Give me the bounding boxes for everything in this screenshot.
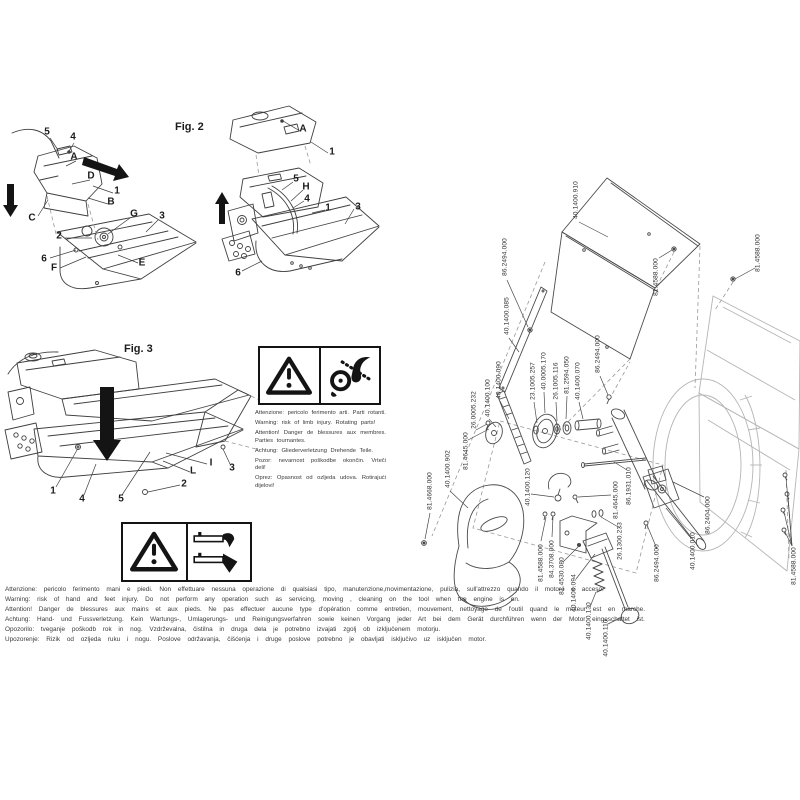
warning-line-it: Attenzione: pericolo ferimento arti. Par… [255,410,386,418]
part-number-label: 40.1400.090 [496,361,503,399]
bottom-warning-de: Achtung: Hand- und Fussverletzung. Kein … [5,616,794,624]
part-number-label: 40.1400.010 [690,532,697,570]
part-number-label: 86.2494.000 [502,238,509,276]
exploded-parts [454,178,708,626]
fig2-callout: E [139,258,146,269]
part-number-label: 40.0005.170 [541,352,548,390]
fig2-callout: F [51,263,57,274]
fig2-title: Fig. 2 [175,121,204,133]
part-number-label: 23.1005.257 [530,362,537,400]
fig2-callout: 3 [355,202,361,213]
fig2-callout: 4 [70,132,76,143]
fig2-callout: 2 [56,231,62,242]
part-number-label: 81.4645.000 [463,432,470,470]
fig3-callout: 4 [79,494,85,505]
hand-foot-injury-icon [188,524,251,580]
fig2-callout: G [130,209,138,220]
manual-page: Fig. 2 Fig. 3 5 4 A D 1 B C G 3 2 6 F E … [0,0,800,800]
rotating-warning-text: Attenzione: pericolo ferimento arti. Par… [255,410,386,493]
fig2-callout: B [107,197,114,208]
fig3-callout: I [210,458,213,469]
fig3-title: Fig. 3 [124,343,153,355]
part-number-label: 81.4668.000 [427,472,434,510]
warning-triangle-icon [260,348,321,403]
rotating-parts-entanglement-icon [321,348,380,403]
fig3-callout: 3 [229,463,235,474]
fig2-callout: A [70,152,77,163]
fig2-callout: 5 [293,174,299,185]
bottom-warning-sl: Opozorilo: tveganje poškodb rok in nog. … [5,626,794,634]
fig2-callout: 6 [41,254,47,265]
part-number-label: 86.1931.010 [626,467,633,505]
fig2-right-leaders [242,120,354,271]
warning-line-sl: Pozor: nevarnost poškodbe okončin. Vrteč… [255,458,386,473]
part-number-label: 81.4645.000 [613,481,620,519]
part-number-label: 81.4588.000 [653,258,660,296]
part-number-label: 84.3708.000 [549,540,556,578]
direction-arrows [3,157,229,461]
fig2-callout: H [302,182,309,193]
bottom-warning-en: Warning: risk of hand and feet injury. D… [5,596,794,604]
part-number-label: 86.2404.000 [705,496,712,534]
exploded-leaders [425,222,792,624]
fig2-callout: 6 [235,268,241,279]
fig2-callout: C [28,213,35,224]
fig2-callout: 1 [325,203,331,214]
part-number-label: 26.1300.233 [617,522,624,560]
warning-pictogram-box-hand-feet [121,522,252,582]
fig2-callout: 1 [329,147,335,158]
fig2-callout: 5 [44,127,50,138]
bottom-warning-fr: Attention! Danger de blessures aux mains… [5,606,794,614]
exploded-hopper-drum [653,296,800,571]
part-number-label: 86.2494.000 [595,335,602,373]
fig3-drawing [5,350,251,495]
fig3-leaders [56,449,230,495]
part-number-label: 40.1400.100 [485,379,492,417]
part-number-label: 26.0005.232 [471,391,478,429]
technical-line-art [0,0,800,800]
part-number-label: 40.1400.085 [504,297,511,335]
bottom-warning-it: Attenzione: pericolo ferimento mani e pi… [5,586,794,594]
part-number-label: 81.4588.000 [791,547,798,585]
part-number-label: 40.1400.902 [445,450,452,488]
fig2-callout: 1 [114,186,120,197]
fig2-left-drawing [12,129,196,288]
bottom-warning-hr: Upozorenje: Rizik od ozljeda ruku i nogu… [5,636,794,644]
fig3-callout: 1 [50,486,56,497]
warning-pictogram-box-rotating [258,346,381,405]
fig3-callout: 5 [118,494,124,505]
fig2-callout: A [299,124,306,135]
part-number-label: 40.1400.910 [573,181,580,219]
fig3-callout: L [190,466,196,477]
fig2-left-leaders [38,138,158,268]
warning-line-en: Warning: risk of limb injury. Rotating p… [255,420,386,428]
part-number-label: 86.2494.000 [654,544,661,582]
arrow-down-icon [3,184,18,217]
fig2-callout: D [87,171,94,182]
warning-line-fr: Attention! Danger de blessures aux membr… [255,430,386,445]
warning-line-hr: Oprez: Opasnost od ozljeda udova. Rotira… [255,475,386,490]
bottom-warning-text: Attenzione: pericolo ferimento mani e pi… [5,586,794,646]
part-number-label: 81.2594.050 [564,356,571,394]
arrow-up-icon [215,192,229,224]
fig2-callout: 4 [304,194,310,205]
part-number-label: 81.4588.000 [538,544,545,582]
fig2-left-dashed [47,196,98,240]
fig3-callout: 2 [181,479,187,490]
fig2-callout: 3 [159,211,165,222]
part-number-label: 40.1400.120 [525,468,532,506]
part-number-label: 81.4588.000 [755,234,762,272]
part-number-label: 26.1005.116 [553,362,560,399]
warning-line-de: Achtung: Gliederverletzung Drehende Teil… [255,448,386,456]
warning-triangle-icon [123,524,188,580]
part-number-label: 40.1400.070 [575,362,582,400]
